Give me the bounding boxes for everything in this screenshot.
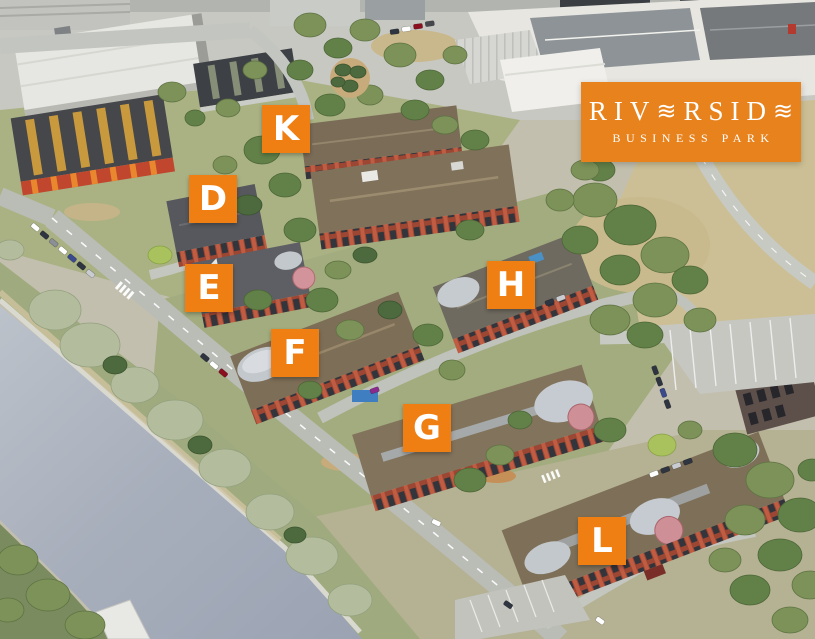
building-label-l[interactable]: L <box>578 517 626 565</box>
building-label-h[interactable]: H <box>487 261 535 309</box>
logo-wordmark: RIV≋RSID≋ <box>589 98 800 125</box>
building-label-d[interactable]: D <box>189 175 237 223</box>
wave-glyph-icon: ≋ <box>773 97 800 125</box>
riverside-logo: RIV≋RSID≋ BUSINESS PARK <box>581 82 801 162</box>
riverside-map-page: { "logo": { "text_part1": "RIV", "wave_g… <box>0 0 815 639</box>
building-label-k[interactable]: K <box>262 105 310 153</box>
logo-tagline: BUSINESS PARK <box>612 131 774 146</box>
building-label-f[interactable]: F <box>271 329 319 377</box>
building-label-g[interactable]: G <box>403 404 451 452</box>
building-label-e[interactable]: E <box>185 264 233 312</box>
wave-glyph-icon: ≋ <box>656 97 683 125</box>
